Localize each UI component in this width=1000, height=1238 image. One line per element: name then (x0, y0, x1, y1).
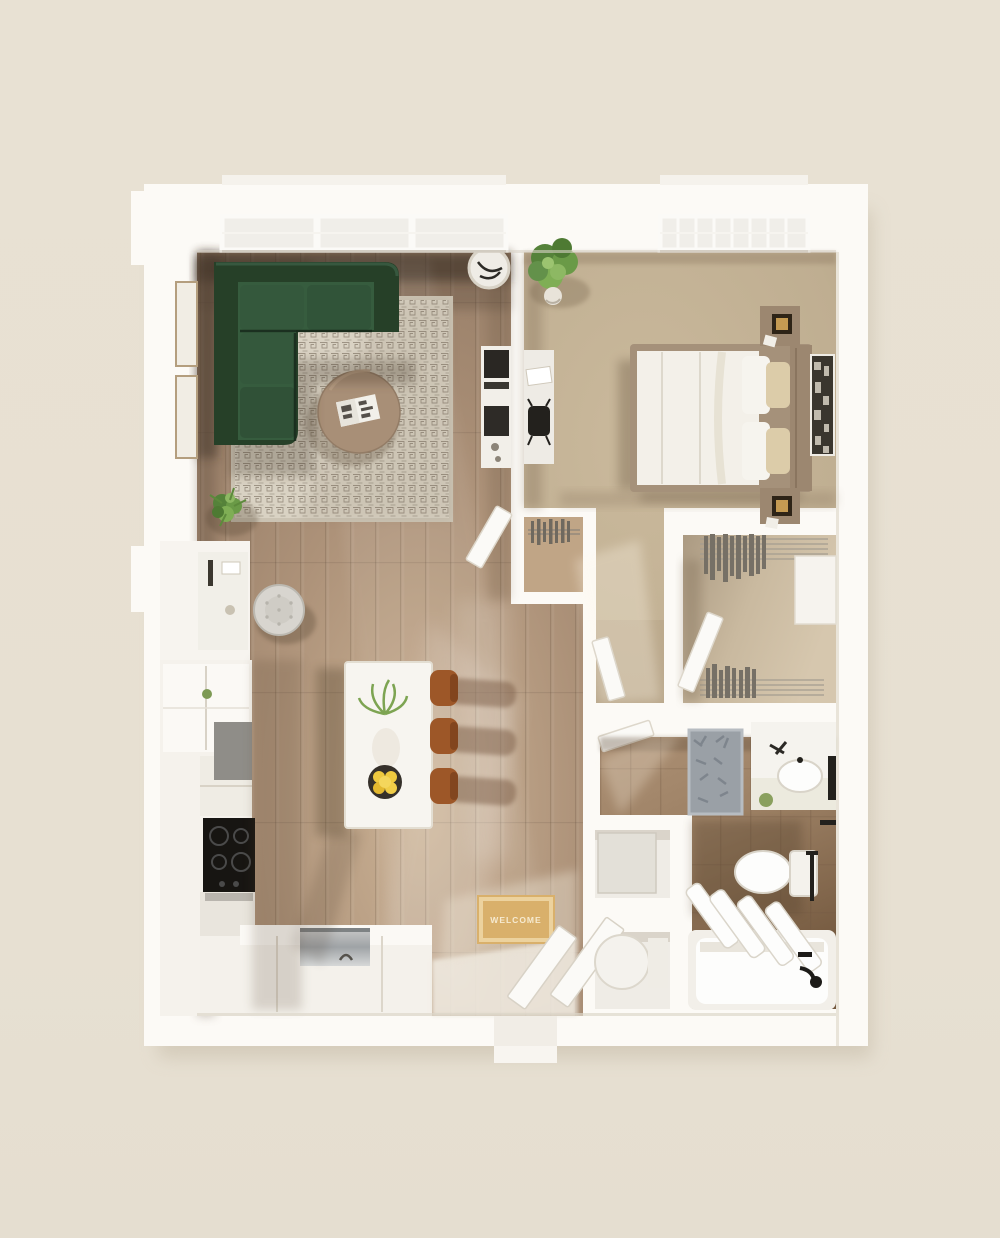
svg-text:WELCOME: WELCOME (490, 915, 541, 925)
